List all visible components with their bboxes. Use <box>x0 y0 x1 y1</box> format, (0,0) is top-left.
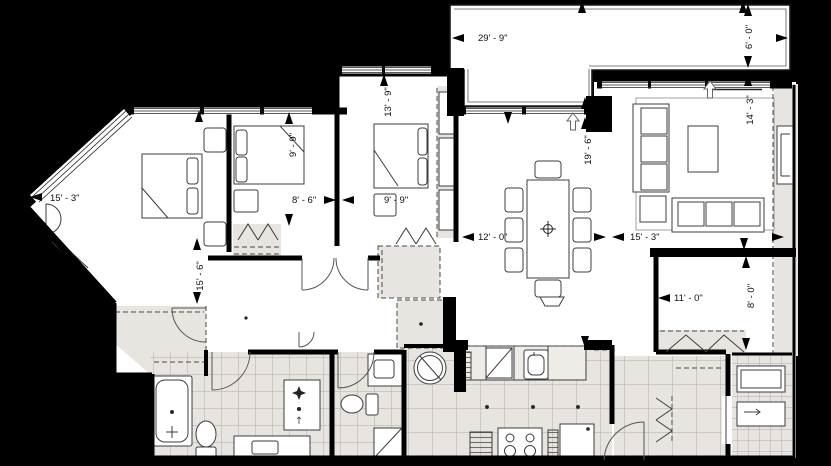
dim-living-depth: 14' - 3" <box>745 95 756 124</box>
window-band <box>342 67 431 74</box>
nightstand <box>234 190 258 212</box>
dim-bedroom1-width: 15' - 3" <box>50 193 79 204</box>
kitchen-sink <box>524 350 548 379</box>
window-band <box>134 108 312 115</box>
dim-bedroom2-width: 8' - 6" <box>292 195 316 206</box>
floor-plan-canvas: 29' - 9" 6' - 0" 15' - 3" 9' - 9" 13' - … <box>0 0 831 466</box>
dim-entry-depth: 8' - 0" <box>746 284 757 308</box>
dim-hall-depth: 15' - 6" <box>195 261 206 290</box>
window-band <box>466 108 584 115</box>
dim-balcony-depth: 6' - 0" <box>744 25 755 49</box>
dim-bedroom2-depth: 9' - 9" <box>288 133 299 157</box>
dim-entry-width: 11' - 0" <box>674 293 703 304</box>
fridge <box>560 424 594 460</box>
sofa-horizontal <box>672 198 764 232</box>
dim-dining-width: 12' - 0" <box>478 232 507 243</box>
washer <box>414 352 446 384</box>
side-table <box>640 196 666 222</box>
vanity-1 <box>234 436 310 458</box>
floor-plan-stage: 29' - 9" 6' - 0" 15' - 3" 9' - 9" 13' - … <box>0 0 831 466</box>
shower-1 <box>284 380 320 430</box>
dim-balcony-width: 29' - 9" <box>478 33 507 44</box>
fireplace <box>777 126 793 184</box>
bathtub <box>152 376 192 446</box>
dim-greatroom-depth: 19' - 6" <box>583 135 594 164</box>
toilet-1 <box>196 421 216 458</box>
shower-2 <box>374 428 402 458</box>
dim-bedroom3-depth: 13' - 9" <box>383 87 394 116</box>
coffee-table <box>688 126 718 172</box>
sofa-vertical <box>633 104 669 192</box>
stove <box>498 428 542 460</box>
dim-bedroom3-width: 9' - 9" <box>384 195 408 206</box>
dim-living-width: 15' - 3" <box>630 232 659 243</box>
nightstand <box>204 128 226 152</box>
nightstand <box>204 222 226 246</box>
